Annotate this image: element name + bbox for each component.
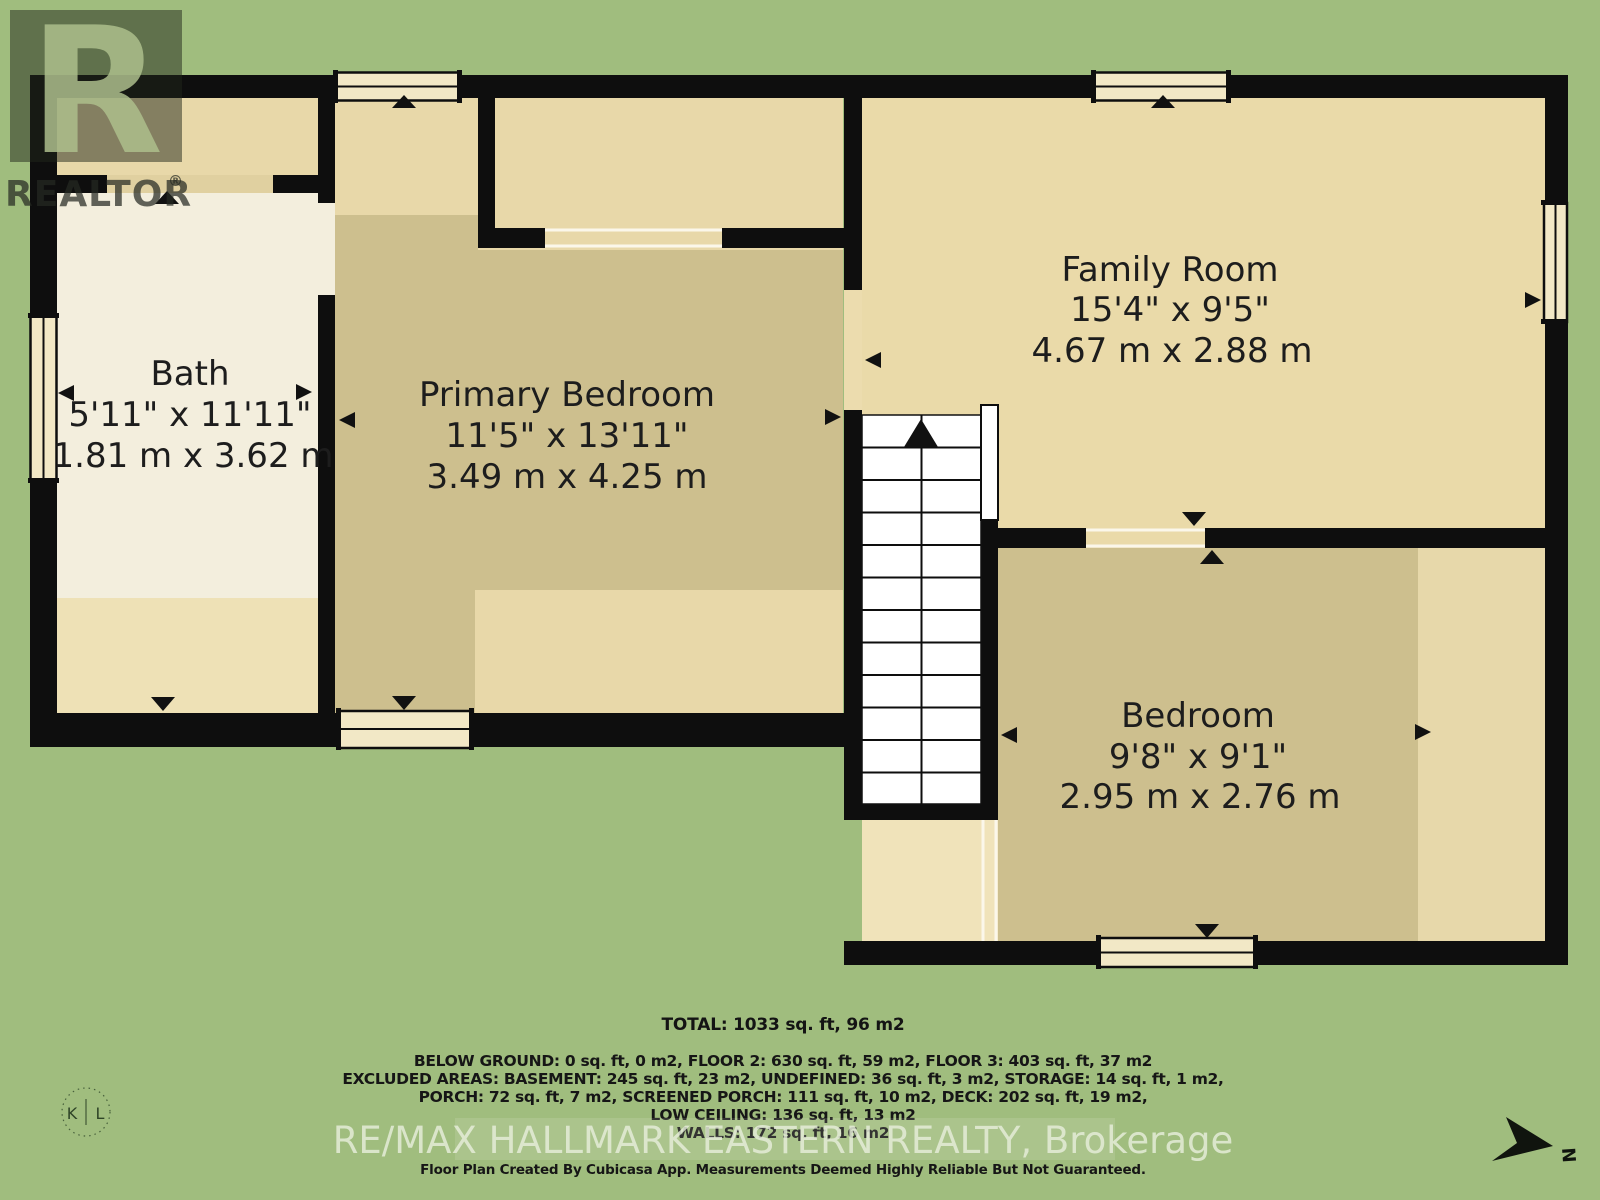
summary-total: TOTAL: 1033 sq. ft, 96 m2 — [662, 1015, 905, 1035]
closet-under-stairs-floor — [862, 820, 981, 941]
summary-line-floors: BELOW GROUND: 0 sq. ft, 0 m2, FLOOR 2: 6… — [414, 1052, 1152, 1070]
wall-stairs-bottom — [844, 803, 998, 820]
wall-mid-closet-left — [478, 98, 495, 230]
bedroom-imperial: 9'8" x 9'1" — [1109, 737, 1287, 777]
bath-divider-opening — [318, 203, 335, 295]
wall-bath-divider-upper — [318, 98, 335, 203]
summary-line-excluded: EXCLUDED AREAS: BASEMENT: 245 sq. ft, 23… — [342, 1070, 1223, 1088]
summary-line-porch-deck: PORCH: 72 sq. ft, 7 m2, SCREENED PORCH: … — [419, 1088, 1148, 1106]
registered-trademark-icon: ® — [168, 172, 183, 190]
window-family-right — [1541, 200, 1568, 324]
wall-closet-bottom-right — [273, 175, 320, 193]
staircase — [862, 405, 998, 804]
primary-imperial: 11'5" x 13'11" — [445, 416, 688, 456]
window-top-primary — [333, 70, 462, 103]
bath-imperial: 5'11" x 11'11" — [68, 395, 311, 435]
realtor-wordmark: REALTOR — [5, 174, 192, 215]
family-imperial: 15'4" x 9'5" — [1070, 290, 1270, 330]
bath-metric: 1.81 m x 3.62 m — [53, 436, 334, 476]
realtor-logo: R REALTOR ® — [5, 0, 192, 215]
window-primary-bottom — [336, 708, 474, 750]
compass-north-label: N — [1557, 1147, 1579, 1164]
bath-name: Bath — [150, 354, 229, 394]
room-label-primary-bedroom: Primary Bedroom 11'5" x 13'11" 3.49 m x … — [419, 375, 715, 497]
compass: N — [1492, 1117, 1579, 1163]
door-opening-primary-family — [844, 290, 862, 410]
wall-top — [30, 75, 1568, 98]
photographer-initial-k: K — [67, 1104, 78, 1123]
family-metric: 4.67 m x 2.88 m — [1032, 331, 1313, 371]
bedroom-name: Bedroom — [1121, 696, 1275, 736]
realtor-r-icon: R — [29, 0, 164, 194]
wall-stairs-right — [981, 520, 998, 803]
floor-plan-canvas: Bath 5'11" x 11'11" 1.81 m x 3.62 m Prim… — [0, 0, 1600, 1200]
family-bedroom-opening — [1086, 528, 1205, 548]
brokerage-watermark: RE/MAX HALLMARK EASTERN REALTY, Brokerag… — [333, 1119, 1234, 1162]
family-name: Family Room — [1061, 250, 1278, 290]
stair-newel — [981, 405, 998, 520]
primary-metric: 3.49 m x 4.25 m — [427, 457, 708, 497]
wall-bath-divider-lower — [318, 295, 335, 713]
compass-north-arrow-icon — [1492, 1117, 1553, 1161]
bedroom-floor-low-ceiling — [1418, 548, 1545, 941]
bedroom-metric: 2.95 m x 2.76 m — [1060, 777, 1341, 817]
mid-closet-opening — [545, 228, 722, 248]
cubicasa-disclaimer: Floor Plan Created By Cubicasa App. Meas… — [420, 1162, 1146, 1178]
window-bedroom-bottom — [1096, 935, 1258, 969]
wall-mid-shared — [844, 98, 862, 820]
closet-bedroom-opening — [981, 820, 998, 941]
primary-name: Primary Bedroom — [419, 375, 715, 415]
bath-floor-lower — [57, 598, 318, 713]
wall-family-bedroom-divider — [996, 528, 1568, 548]
area-summary: TOTAL: 1033 sq. ft, 96 m2 BELOW GROUND: … — [333, 1015, 1234, 1178]
photographer-mark: K L — [62, 1088, 110, 1136]
photographer-initial-l: L — [96, 1104, 105, 1123]
